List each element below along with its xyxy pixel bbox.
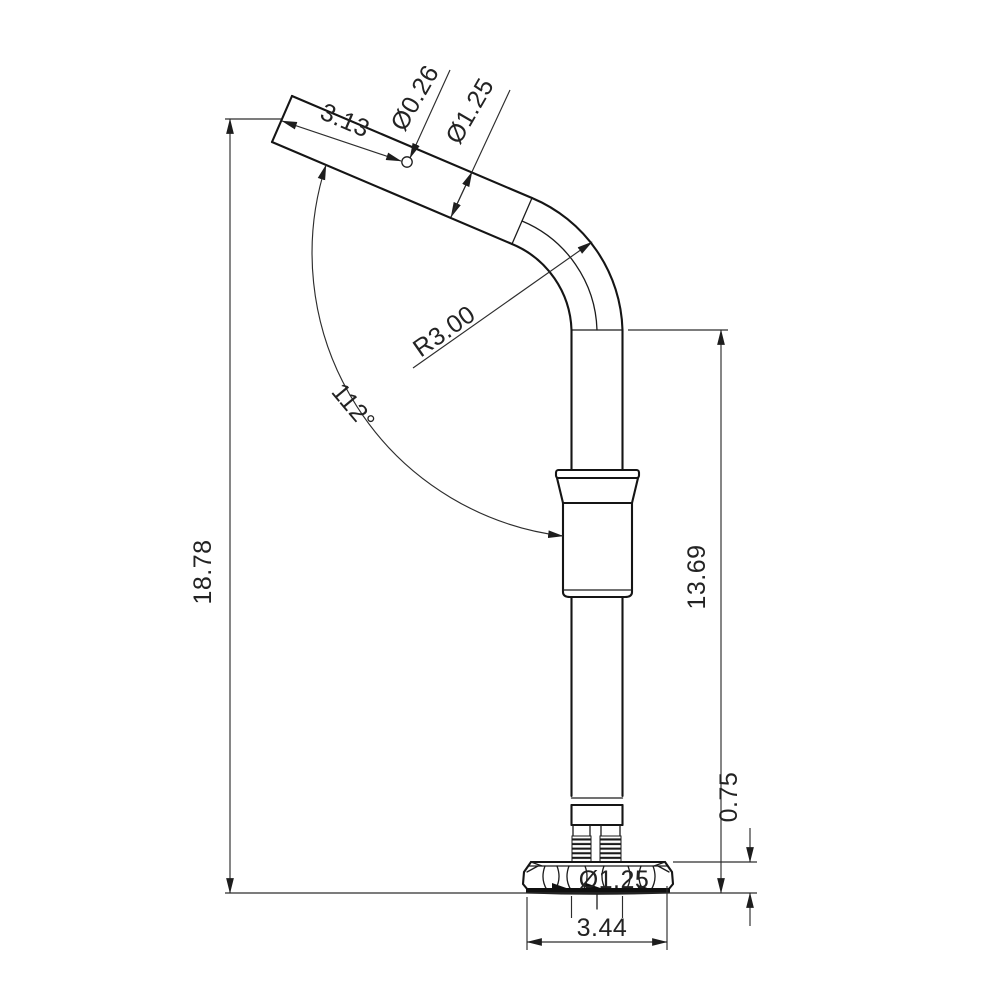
- dim-bend-radius: R3.00: [408, 300, 481, 363]
- dim-tube-dia-group: Ø1.25: [440, 73, 510, 217]
- dim-base-height-group: 0.75: [673, 772, 757, 926]
- dim-overall-height-group: 18.78: [189, 119, 757, 893]
- dim-hole-dia-group: Ø0.26: [385, 60, 450, 158]
- bend: [512, 198, 623, 330]
- vertical-tube-lower: [572, 597, 623, 825]
- technical-drawing: 18.78 13.69 0.75 3.44 Ø1.25: [0, 0, 1000, 1000]
- dim-overall-height: 18.78: [189, 539, 217, 604]
- adjuster-sleeve: [556, 470, 639, 597]
- dim-bend-angle: 112°: [326, 378, 381, 436]
- dim-post-height: 13.69: [683, 544, 711, 609]
- threaded-studs: [572, 825, 621, 862]
- arm-hole: [402, 157, 412, 167]
- dim-base-hole-group: Ø1.25: [572, 866, 650, 918]
- dim-arm-length-group: 3.13: [282, 98, 401, 161]
- vertical-tube-upper: [572, 330, 623, 470]
- dim-tube-diameter: Ø1.25: [440, 73, 500, 148]
- dim-base-height: 0.75: [715, 772, 743, 823]
- dim-arm-hole-diameter: Ø0.26: [385, 60, 445, 135]
- drawing-canvas: 18.78 13.69 0.75 3.44 Ø1.25: [0, 0, 1000, 1000]
- dim-base-width: 3.44: [577, 914, 628, 942]
- dim-base-hole-diameter: Ø1.25: [579, 866, 650, 894]
- dim-arm-hole-offset: 3.13: [316, 98, 374, 144]
- part-outline: [272, 96, 673, 909]
- dim-post-height-group: 13.69: [628, 330, 728, 893]
- dimensions: 18.78 13.69 0.75 3.44 Ø1.25: [189, 60, 757, 950]
- dim-bend-radius-group: R3.00: [408, 242, 592, 368]
